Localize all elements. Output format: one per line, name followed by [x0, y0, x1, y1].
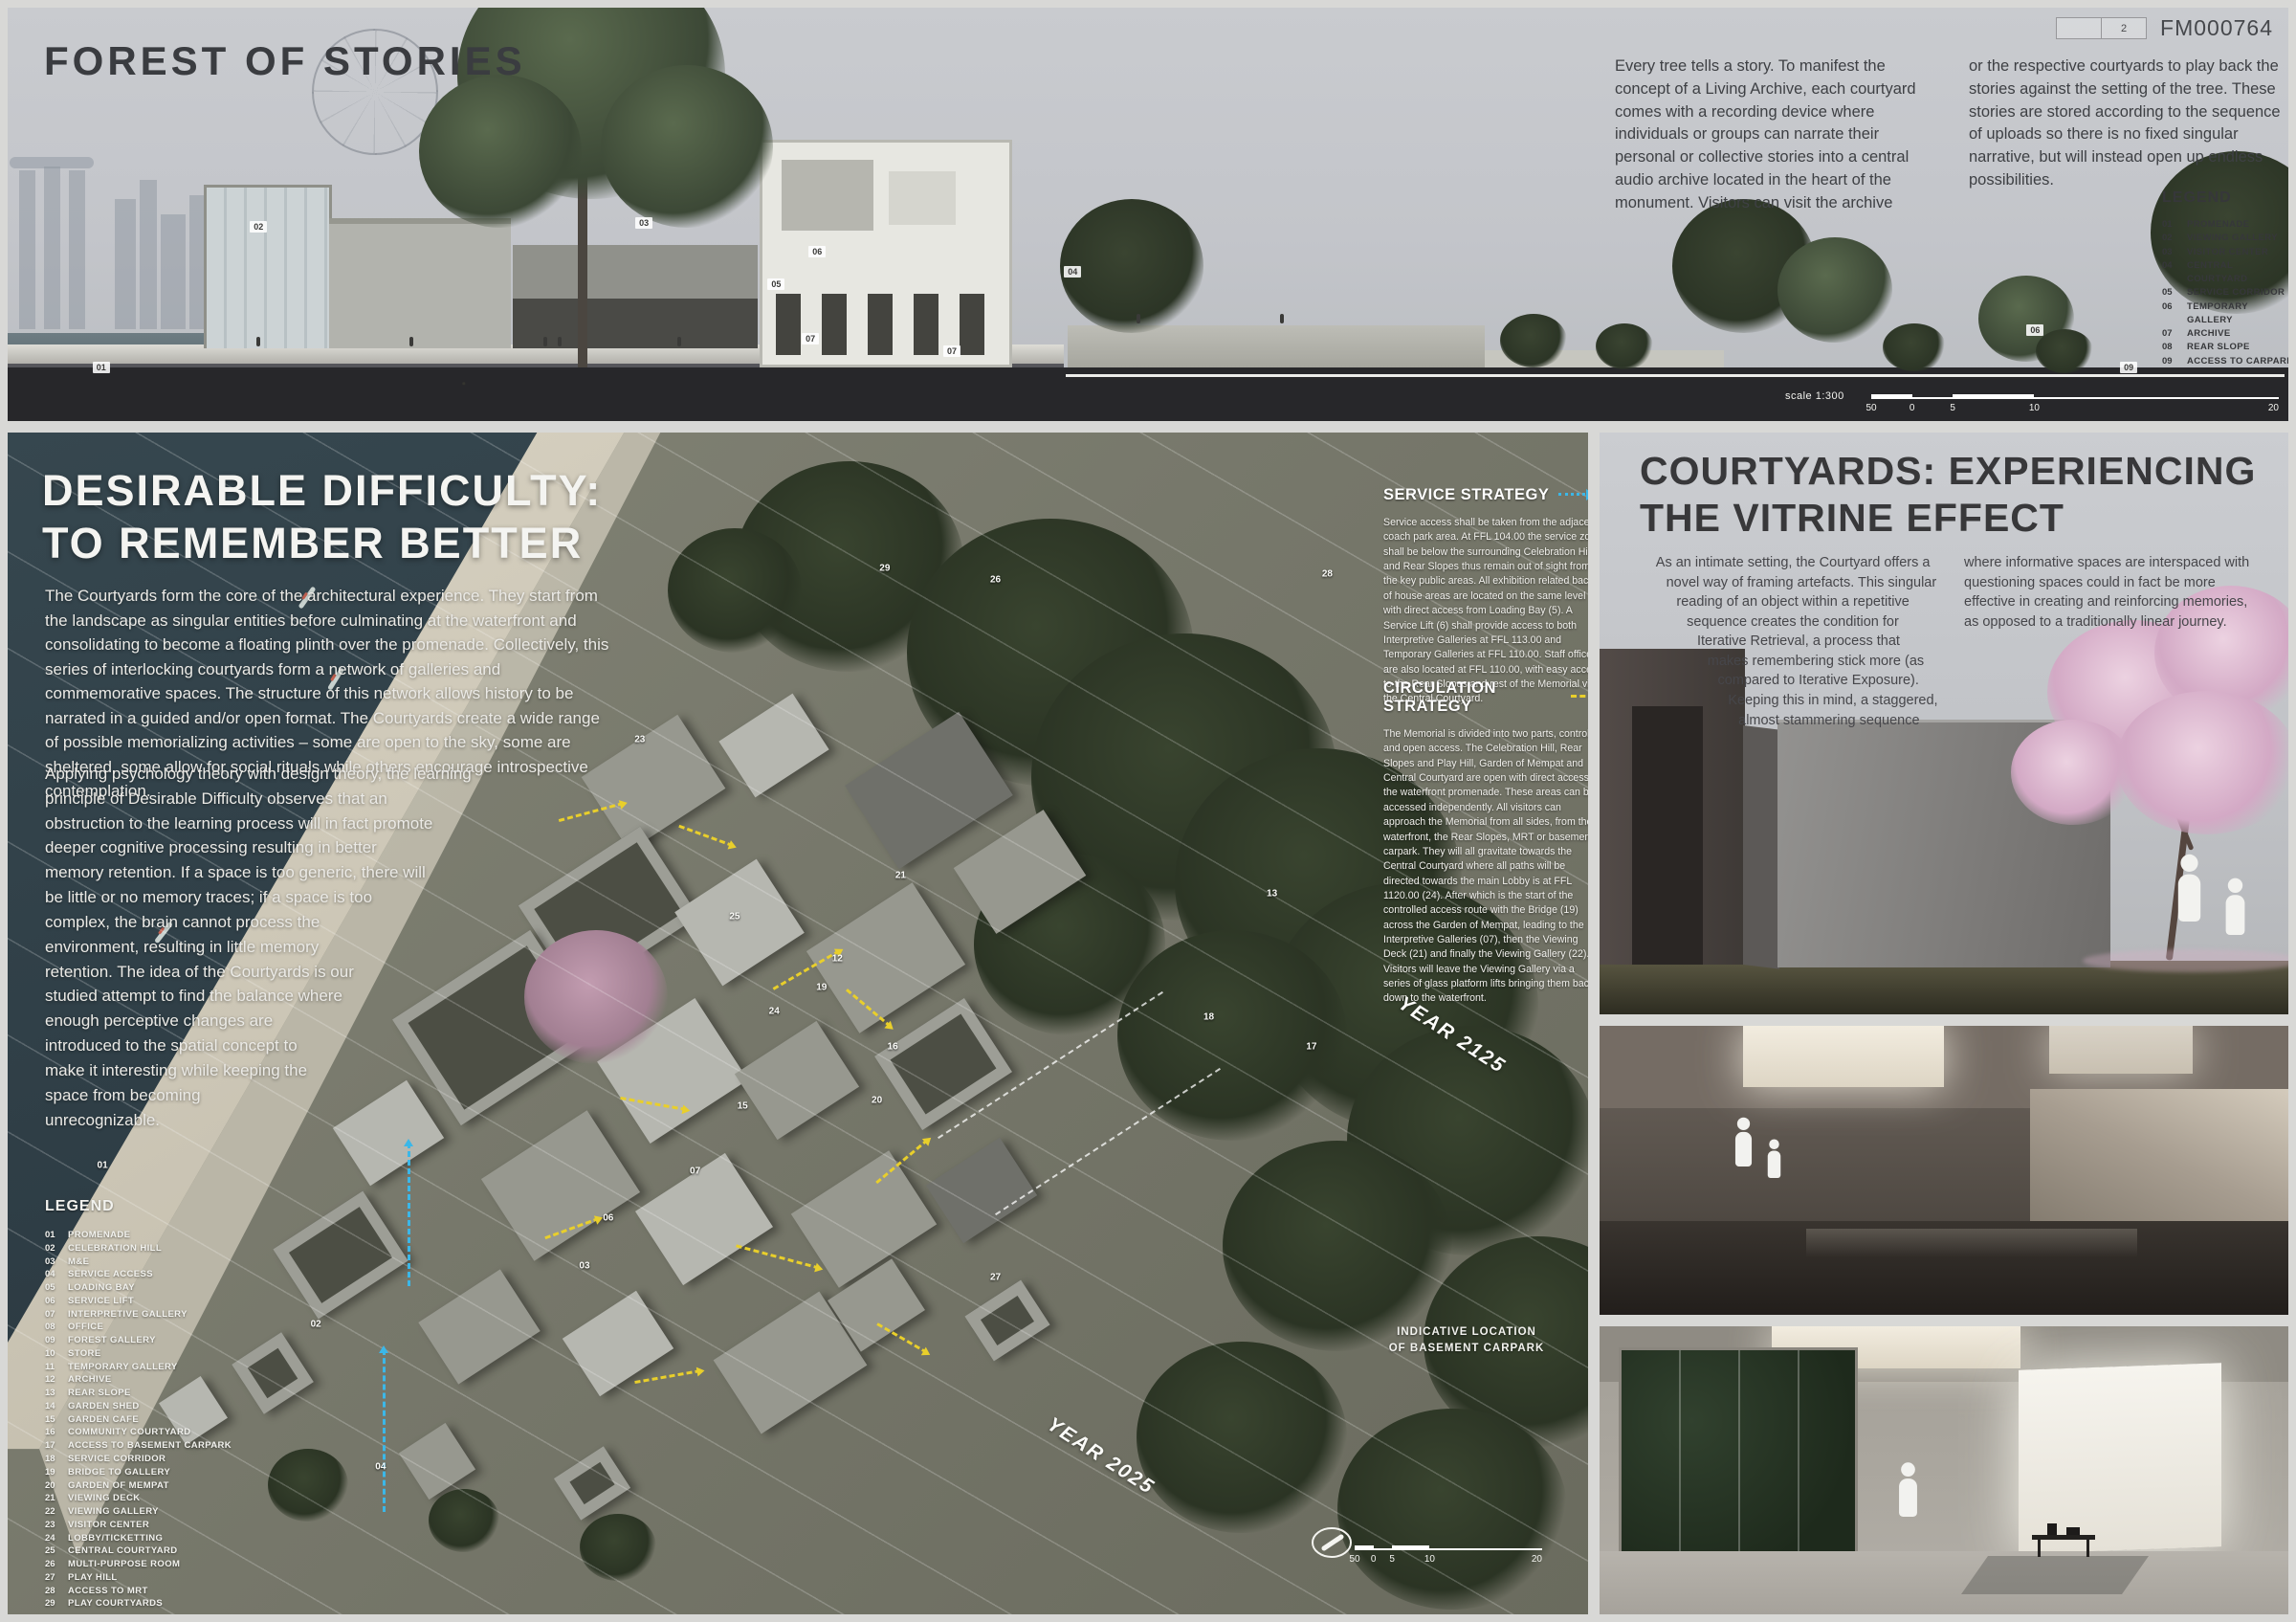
plan-scale-track	[1355, 1545, 1542, 1552]
artefact-object	[2066, 1527, 2080, 1535]
basement-carpark-label: INDICATIVE LOCATION OF BASEMENT CARPARK	[1347, 1324, 1586, 1358]
legend-item: 24 LOBBY/TICKETTING	[45, 1532, 246, 1545]
legend-item: 04 SERVICE ACCESS	[45, 1268, 246, 1281]
section-marker: 05	[767, 278, 784, 290]
reflective-floor	[1600, 1221, 2288, 1315]
plan-marker: 06	[603, 1213, 613, 1224]
plan-marker: 28	[1322, 569, 1333, 580]
section-marker: 02	[250, 221, 267, 233]
plan-marker: 29	[879, 564, 890, 574]
section-marker: 04	[1064, 266, 1081, 278]
legend-item: 19 BRIDGE TO GALLERY	[45, 1466, 246, 1479]
scale-tick: 20	[2268, 403, 2279, 413]
legend-item: 23 VISITOR CENTER	[45, 1519, 246, 1532]
page-index-cell: 2	[2101, 18, 2146, 38]
artefact-object	[2047, 1523, 2057, 1535]
circulation-arrow-icon	[1571, 695, 1588, 700]
legend-item: 07 INTERPRETIVE GALLERY	[45, 1308, 246, 1322]
person-silhouette	[1735, 1132, 1752, 1167]
legend-item: 05 SERVICE CORRIDOR	[2162, 286, 2288, 300]
legend-item: 16 COMMUNITY COURTYARD	[45, 1426, 246, 1439]
section-marker: 09	[2120, 362, 2137, 373]
plan-marker: 24	[769, 1007, 780, 1017]
plan-marker: 26	[990, 575, 1001, 586]
section-marker: 01	[93, 362, 110, 373]
legend-item: 09 ACCESS TO CARPARK	[2162, 355, 2288, 368]
plan-marker: 27	[990, 1273, 1001, 1283]
scale-tick: 10	[1424, 1554, 1435, 1565]
plan-marker: 07	[690, 1166, 700, 1176]
circulation-strategy-body: The Memorial is divided into two parts, …	[1383, 727, 1588, 1007]
scale-bar: scale 1:300 05102050	[1785, 385, 2279, 417]
legend-item: 29 PLAY COURTYARDS	[45, 1597, 246, 1611]
scale-tick: 50	[1865, 403, 1876, 413]
board-id: FM000764	[2160, 15, 2273, 41]
legend-item: 14 GARDEN SHED	[45, 1400, 246, 1413]
plan-marker: 02	[311, 1320, 321, 1330]
plan-marker: 20	[872, 1095, 882, 1105]
competition-board: 01020304050607070609 FOREST OF STORIES 2…	[0, 0, 2296, 1622]
section-marker: 07	[802, 333, 819, 344]
interior-rendering-2	[1600, 1326, 2288, 1614]
legend-item: 08 OFFICE	[45, 1321, 246, 1334]
plan-marker: 17	[1306, 1042, 1316, 1053]
plan-marker: 03	[579, 1260, 589, 1271]
vitrine-panel: COURTYARDS: EXPERIENCING THE VITRINE EFF…	[1600, 433, 2288, 1014]
masterplan-title: DESIRABLE DIFFICULTY: TO REMEMBER BETTER	[42, 465, 602, 570]
vitrine-title: COURTYARDS: EXPERIENCING THE VITRINE EFF…	[1640, 448, 2256, 542]
vitrine-column-1: As an intimate setting, the Courtyard of…	[1645, 553, 1939, 768]
plan-scale-bar: 05102050	[1355, 1536, 1542, 1568]
display-table	[2032, 1535, 2095, 1540]
scale-track	[1871, 394, 2279, 401]
plan-scale-ticks: 05102050	[1355, 1554, 1542, 1566]
legend-item: 20 GARDEN OF MEMPAT	[45, 1479, 246, 1493]
scale-tick: 10	[2029, 403, 2040, 413]
plan-marker: 21	[895, 871, 906, 881]
legend-item: 28 ACCESS TO MRT	[45, 1585, 246, 1598]
legend-item: 02 VIEWING GALLERY	[2162, 232, 2288, 245]
scale-label: scale 1:300	[1785, 390, 1844, 402]
floor	[1600, 1551, 2288, 1614]
plan-marker: 16	[888, 1042, 898, 1053]
legend-item: 12 ARCHIVE	[45, 1373, 246, 1387]
scale-tick: 0	[1371, 1554, 1377, 1565]
legend-item: 11 TEMPORARY GALLERY	[45, 1361, 246, 1374]
person-silhouette	[1768, 1151, 1781, 1179]
legend-item: 26 MULTI-PURPOSE ROOM	[45, 1558, 246, 1571]
service-strategy-heading: SERVICE STRATEGY	[1383, 486, 1588, 504]
masterplan-panel: 2926282321132512192418161720150706010327…	[8, 433, 1588, 1614]
service-arrow-icon	[1558, 493, 1588, 499]
legend-item: 17 ACCESS TO BASEMENT CARPARK	[45, 1439, 246, 1453]
vitrine-text: As an intimate setting, the Courtyard of…	[1645, 553, 2258, 768]
page-index-box: 2	[2056, 17, 2147, 39]
legend-item: 18 SERVICE CORRIDOR	[45, 1453, 246, 1466]
person-silhouette	[2178, 875, 2200, 922]
legend-rows: 01 PROMENADE 02 VIEWING GALLERY 03 VISIT…	[2162, 218, 2288, 368]
scale-tick: 5	[1950, 403, 1955, 413]
legend-rows: 01 PROMENADE 02 CELEBRATION HILL 03 M&E	[45, 1229, 246, 1611]
masterplan-paragraph-2: Applying psychology theory with design t…	[45, 762, 495, 1173]
legend-item: 06 SERVICE LIFT	[45, 1295, 246, 1308]
circulation-strategy: CIRCULATION STRATEGY The Memorial is div…	[1383, 679, 1588, 1007]
skylight	[2049, 1026, 2193, 1074]
person-silhouette	[2226, 895, 2245, 935]
legend-item: 03 M&E	[45, 1255, 246, 1269]
floor-mat	[1961, 1556, 2149, 1594]
plan-marker: 23	[634, 735, 645, 745]
section-marker: 03	[635, 217, 652, 229]
scale-tick: 20	[1532, 1554, 1542, 1565]
circulation-strategy-heading: CIRCULATION STRATEGY	[1383, 679, 1588, 716]
service-strategy-body: Service access shall be taken from the a…	[1383, 516, 1588, 707]
plan-marker: 12	[832, 953, 843, 964]
plan-marker: 15	[738, 1100, 748, 1111]
page-index-cell-empty	[2057, 18, 2101, 38]
legend-item: 01 PROMENADE	[45, 1229, 246, 1242]
legend-item: 06 TEMPORARY GALLERY	[2162, 300, 2288, 328]
legend-title: LEGEND	[2162, 189, 2288, 207]
legend-item: 15 GARDEN CAFE	[45, 1413, 246, 1427]
forest-of-stories-panel: 01020304050607070609 FOREST OF STORIES 2…	[8, 8, 2288, 421]
panel-title: FOREST OF STORIES	[44, 38, 526, 84]
legend-item: 03 VISITOR CENTER	[2162, 246, 2288, 259]
legend-item: 25 CENTRAL COURTYARD	[45, 1544, 246, 1558]
legend-item: 21 VIEWING DECK	[45, 1492, 246, 1505]
section-marker: 06	[2026, 324, 2043, 336]
scale-tick: 50	[1349, 1554, 1359, 1565]
scale-ticks: 05102050	[1871, 403, 2279, 414]
north-compass-icon	[1311, 1523, 1353, 1562]
intro-column-1: Every tree tells a story. To manifest th…	[1615, 56, 1942, 214]
legend-item: 10 STORE	[45, 1347, 246, 1361]
plan-marker: 25	[729, 912, 740, 922]
vitrine-column-2: where informative spaces are interspaced…	[1964, 553, 2258, 768]
person-silhouette	[1899, 1478, 1917, 1517]
plan-marker: 13	[1267, 888, 1277, 899]
legend-item: 08 REAR SLOPE	[2162, 341, 2288, 354]
legend-item: 09 FOREST GALLERY	[45, 1334, 246, 1347]
section-marker: 07	[943, 345, 960, 357]
legend-item: 13 REAR SLOPE	[45, 1387, 246, 1400]
section-legend: LEGEND 01 PROMENADE 02 VIEWING GALLERY 0…	[2162, 189, 2288, 368]
legend-item: 22 VIEWING GALLERY	[45, 1505, 246, 1519]
legend-item: 27 PLAY HILL	[45, 1571, 246, 1585]
skylight	[1743, 1026, 1944, 1087]
section-marker: 06	[808, 246, 826, 257]
legend-item: 05 LOADING BAY	[45, 1281, 246, 1295]
legend-title: LEGEND	[45, 1198, 246, 1215]
legend-item: 07 ARCHIVE	[2162, 327, 2288, 341]
service-strategy: SERVICE STRATEGY Service access shall be…	[1383, 486, 1588, 707]
plan-marker: 18	[1203, 1012, 1214, 1023]
interior-rendering-1	[1600, 1026, 2288, 1315]
legend-item: 01 PROMENADE	[2162, 218, 2288, 232]
page-tag: 2 FM000764	[2056, 15, 2273, 41]
plan-marker: 04	[375, 1461, 386, 1472]
fallen-petals	[2083, 949, 2288, 972]
scale-tick: 5	[1389, 1554, 1395, 1565]
plan-marker: 19	[816, 983, 827, 993]
masterplan-legend: LEGEND 01 PROMENADE 02 CELEBRATION HILL …	[45, 1198, 246, 1611]
legend-item: 04 CENTRAL COURTYARD	[2162, 259, 2288, 287]
legend-item: 02 CELEBRATION HILL	[45, 1242, 246, 1255]
scale-tick: 0	[1910, 403, 1915, 413]
